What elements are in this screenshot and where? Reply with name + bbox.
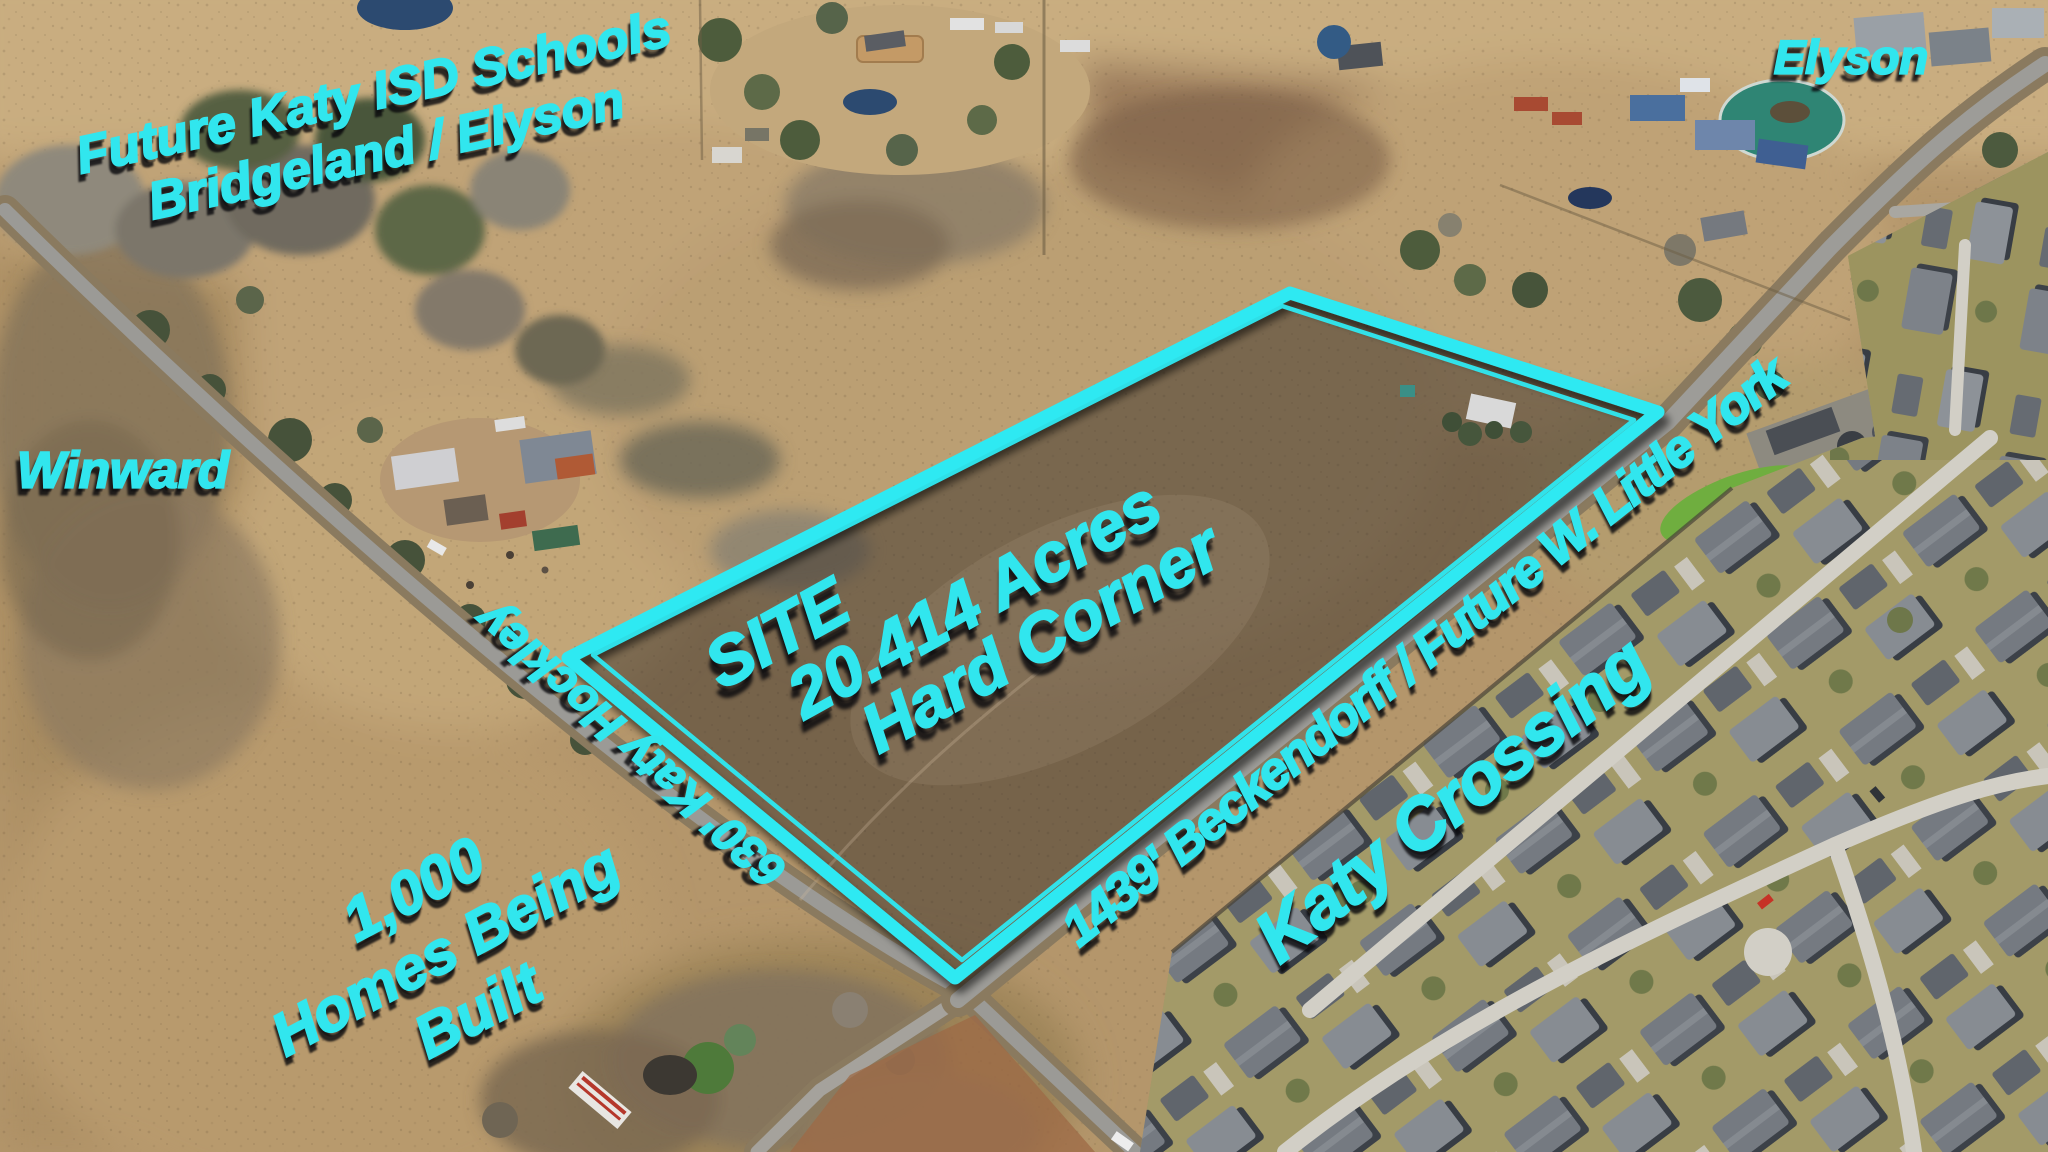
label-elyson: Elyson bbox=[1774, 30, 1928, 85]
label-winward: Winward bbox=[17, 441, 229, 500]
aerial-site-map: Future Katy ISD Schools Bridgeland / Ely… bbox=[0, 0, 2048, 1152]
